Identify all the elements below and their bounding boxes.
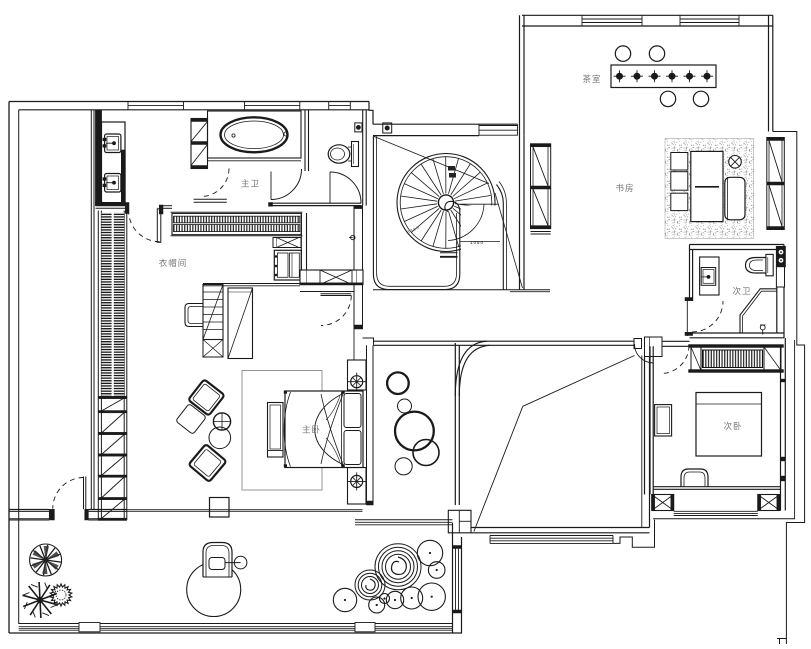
svg-text:次卫: 次卫 — [732, 286, 751, 296]
svg-text:次卧: 次卧 — [723, 421, 742, 431]
svg-text:茶室: 茶室 — [582, 74, 601, 84]
svg-text:1050: 1050 — [470, 240, 484, 245]
svg-text:衣帽间: 衣帽间 — [159, 258, 188, 268]
svg-text:主卧: 主卧 — [302, 425, 321, 435]
svg-text:书房: 书房 — [615, 183, 634, 193]
svg-text:主卫: 主卫 — [241, 179, 260, 189]
